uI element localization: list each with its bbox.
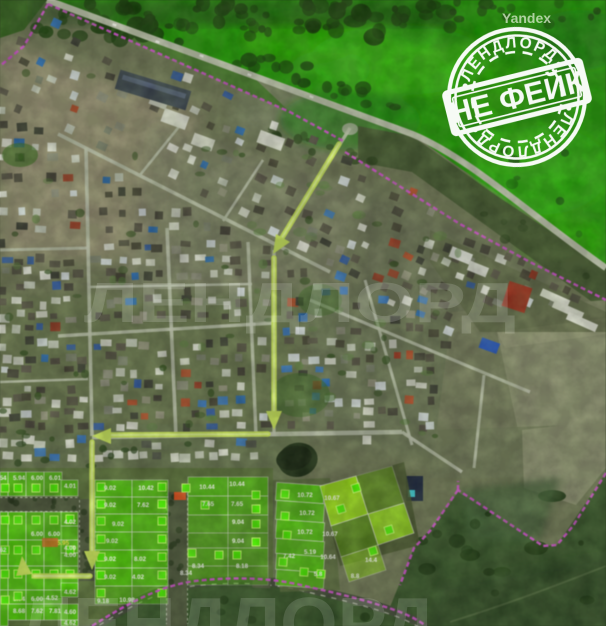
svg-text:ЛЕНДЛОРД: ЛЕНДЛОРД [21,584,435,626]
svg-text:ЛЕНДЛОРД: ЛЕНДЛОРД [84,271,516,335]
svg-text:Yandex: Yandex [502,10,551,26]
